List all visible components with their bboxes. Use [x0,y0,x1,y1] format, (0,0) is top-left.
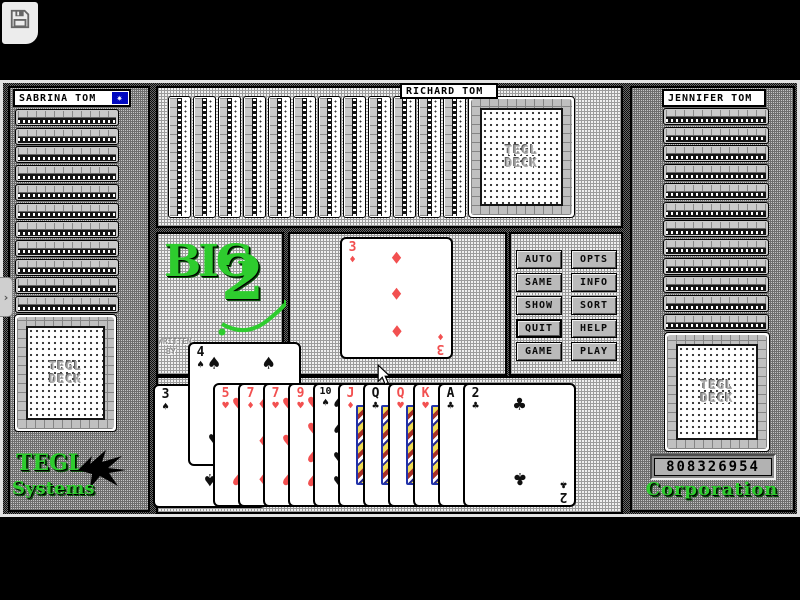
card-corner-index: 5♥ [218,387,233,411]
score-display: 808326954 [650,454,776,480]
card-back-strip [663,276,769,293]
card-back-strip [663,202,769,219]
card-back-strip [268,96,291,218]
card-back-strip [663,164,769,181]
card-back-strip [218,96,241,218]
btn-info[interactable]: INFO [571,273,617,292]
btn-sort[interactable]: SORT [571,296,617,315]
diamond-pip-icon: ♦ [390,321,402,341]
btn-play[interactable]: PLAY [571,342,617,361]
card-back-strip [15,203,119,220]
card-corner-index: 3♦ [433,331,448,355]
card-corner-index: 3♠ [158,388,173,412]
spade-pip-icon: ♠ [208,353,220,373]
turn-marker-star-icon: ✷ [112,92,128,104]
card-back-strip [663,258,769,275]
logo-swoosh [214,300,286,338]
deck-label: TEGL DECK [15,315,116,431]
card-back-strip [663,295,769,312]
card-back-strip [318,96,341,218]
table-card-3-diamond: 3♦3♦♦♦♦ [340,237,453,359]
hand-card-2-club[interactable]: 2♣2♣♣♣ [463,383,576,507]
diamond-pip-icon: ♦ [390,284,402,304]
card-back-strip [663,127,769,144]
card-corner-index: A♣ [443,387,458,411]
card-corner-index: 7♥ [268,387,283,411]
player-name-right: JENNIFER TOM [668,93,752,104]
card-back-strip [15,146,119,163]
btn-opts[interactable]: OPTS [571,250,617,269]
spade-pip-icon: ♠ [262,353,274,373]
btn-help[interactable]: HELP [571,319,617,338]
brand-corporation: Corporation [632,479,792,500]
card-back-strip [393,96,416,218]
opponent-deck-card-back: TEGL DECK [664,332,770,452]
score-value: 808326954 [654,458,772,476]
card-corner-index: 2♣ [556,479,571,503]
btn-same[interactable]: SAME [516,273,562,292]
control-buttons-panel: AUTOOPTSSAMEINFOSHOWSORTQUITHELPGAMEPLAY [509,232,623,376]
club-pip-icon: ♣ [513,469,525,489]
card-corner-index: 3♦ [345,241,360,265]
brand-systems: Systems [12,478,95,499]
card-back-strip [293,96,316,218]
credit-line1: WRITTEN [158,337,192,346]
btn-quit[interactable]: QUIT [516,319,562,338]
card-back-strip [663,145,769,162]
card-back-strip [443,96,466,218]
player-name-plate-top: RICHARD TOM [400,83,498,99]
mouse-cursor-icon [377,364,391,386]
card-back-strip [663,108,769,125]
save-button[interactable] [2,2,38,44]
club-pip-icon: ♣ [513,394,525,414]
player-name-left: SABRINA TOM [19,93,96,104]
btn-auto[interactable]: AUTO [516,250,562,269]
card-back-strip [193,96,216,218]
brand-tegl: TEGL [16,450,83,476]
player-name-plate-left: SABRINA TOM ✷ [13,89,131,107]
card-back-strip [15,240,119,257]
deck-label-line2: DECK [505,157,538,170]
card-back-strip [243,96,266,218]
card-back-strip [15,296,119,313]
logo-credit: WRITTEN BY [158,337,192,358]
card-back-strip [15,128,119,145]
btn-game[interactable]: GAME [516,342,562,361]
card-corner-index: 9♥ [293,387,308,411]
card-back-strip [418,96,441,218]
opponent-card-stack-top [168,96,478,220]
card-corner-index: 4♠ [193,346,208,370]
diamond-pip-icon: ♦ [390,248,402,268]
card-back-strip [15,184,119,201]
opponent-card-stack-right [663,108,769,338]
player-name-top: RICHARD TOM [406,86,483,97]
card-corner-index: 2♣ [468,387,483,411]
chevron-right-icon: › [4,291,9,304]
side-panel-tab[interactable]: › [0,277,13,317]
deck-label-line2: DECK [49,373,82,386]
btn-show[interactable]: SHOW [516,296,562,315]
deck-label-line2: DECK [701,392,734,405]
card-back-strip [15,221,119,238]
card-back-strip [663,239,769,256]
big2-game-screen: › SABRINA TOM ✷ TEGL DECK TEGL Systems R… [0,0,800,600]
card-corner-index: 10♠ [318,387,333,408]
card-back-strip [15,109,119,126]
card-back-strip [15,165,119,182]
opponent-card-stack-left [15,109,119,319]
card-corner-index: 7♦ [243,387,258,411]
deck-label: TEGL DECK [469,97,574,217]
floppy-disk-icon [9,8,31,30]
card-back-strip [343,96,366,218]
card-back-strip [663,183,769,200]
opponent-deck-card-back: TEGL DECK [468,96,575,218]
player-name-plate-right: JENNIFER TOM [662,89,766,107]
card-back-strip [15,259,119,276]
deck-label: TEGL DECK [665,333,769,451]
opponent-deck-card-back: TEGL DECK [14,314,117,432]
card-back-strip [663,314,769,331]
credit-line2: BY [166,347,176,356]
card-back-strip [663,220,769,237]
card-back-strip [368,96,391,218]
card-back-strip [168,96,191,218]
card-back-strip [15,277,119,294]
